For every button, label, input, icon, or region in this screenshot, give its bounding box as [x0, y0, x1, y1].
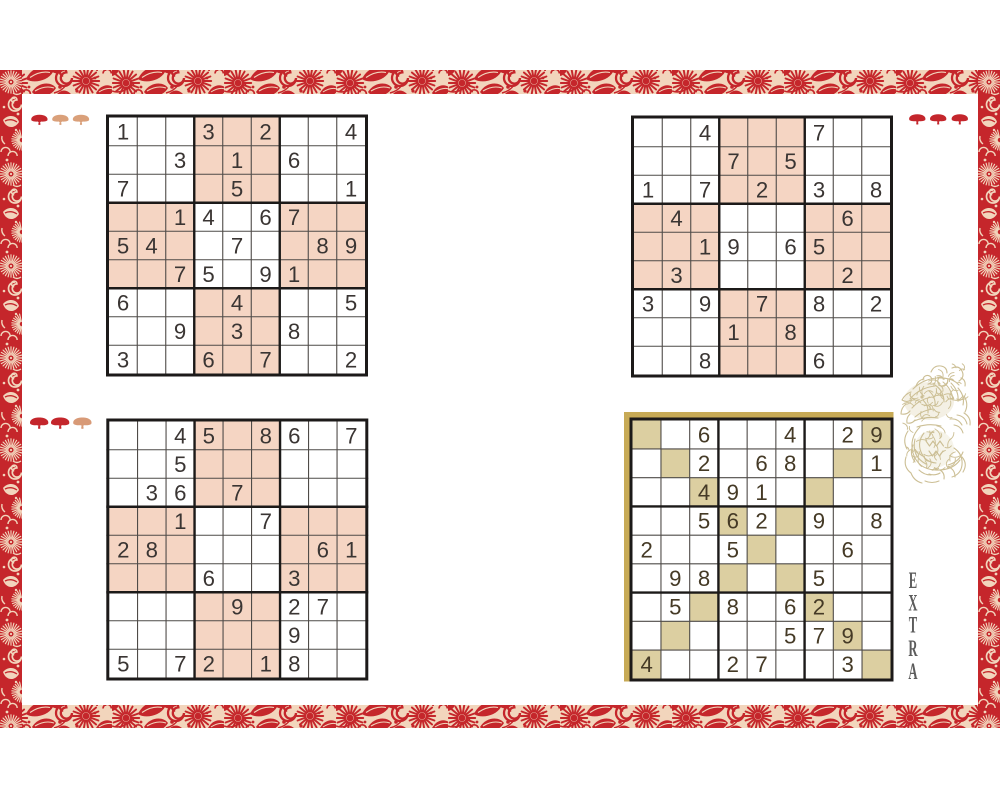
svg-text:2: 2	[841, 263, 853, 288]
svg-text:7: 7	[756, 291, 768, 316]
svg-text:6: 6	[174, 480, 186, 505]
svg-text:9: 9	[669, 566, 681, 591]
svg-text:9: 9	[174, 319, 186, 344]
svg-text:9: 9	[259, 262, 271, 287]
svg-text:6: 6	[202, 347, 214, 372]
svg-text:5: 5	[813, 234, 825, 259]
svg-text:8: 8	[316, 233, 328, 258]
svg-text:5: 5	[698, 509, 710, 534]
svg-text:3: 3	[174, 148, 186, 173]
svg-text:5: 5	[813, 566, 825, 591]
svg-text:4: 4	[345, 119, 357, 144]
svg-text:6: 6	[841, 537, 853, 562]
svg-text:9: 9	[231, 594, 243, 619]
svg-text:6: 6	[784, 234, 796, 259]
svg-text:7: 7	[174, 262, 186, 287]
svg-text:9: 9	[288, 623, 300, 648]
svg-text:2: 2	[203, 651, 215, 676]
svg-text:2: 2	[640, 537, 652, 562]
svg-text:4: 4	[145, 233, 157, 258]
svg-text:4: 4	[699, 120, 711, 145]
svg-text:4: 4	[174, 423, 186, 448]
svg-text:6: 6	[203, 566, 215, 591]
svg-text:6: 6	[117, 290, 129, 315]
svg-text:1: 1	[727, 320, 739, 345]
svg-text:5: 5	[117, 233, 129, 258]
svg-text:5: 5	[231, 176, 243, 201]
svg-text:1: 1	[260, 651, 272, 676]
svg-text:A: A	[908, 659, 918, 685]
svg-text:1: 1	[699, 234, 711, 259]
svg-text:5: 5	[784, 149, 796, 174]
svg-text:7: 7	[260, 509, 272, 534]
svg-text:1: 1	[870, 451, 882, 476]
svg-text:T: T	[909, 613, 918, 639]
svg-text:2: 2	[813, 595, 825, 620]
svg-text:8: 8	[699, 348, 711, 373]
svg-text:8: 8	[260, 423, 272, 448]
svg-text:2: 2	[117, 537, 129, 562]
svg-text:3: 3	[670, 263, 682, 288]
svg-text:4: 4	[670, 206, 682, 231]
svg-text:5: 5	[202, 262, 214, 287]
svg-text:5: 5	[669, 595, 681, 620]
svg-text:8: 8	[727, 595, 739, 620]
svg-text:1: 1	[642, 177, 654, 202]
svg-text:8: 8	[698, 566, 710, 591]
svg-text:7: 7	[174, 651, 186, 676]
svg-text:7: 7	[231, 480, 243, 505]
svg-text:4: 4	[640, 652, 652, 677]
svg-text:7: 7	[288, 205, 300, 230]
svg-text:8: 8	[870, 177, 882, 202]
svg-text:6: 6	[755, 451, 767, 476]
svg-text:3: 3	[288, 566, 300, 591]
svg-text:7: 7	[755, 652, 767, 677]
svg-text:6: 6	[317, 537, 329, 562]
svg-text:4: 4	[202, 205, 214, 230]
svg-text:6: 6	[841, 206, 853, 231]
svg-text:2: 2	[841, 422, 853, 447]
svg-text:5: 5	[203, 423, 215, 448]
svg-text:6: 6	[813, 348, 825, 373]
svg-text:5: 5	[174, 452, 186, 477]
svg-text:3: 3	[202, 119, 214, 144]
svg-text:2: 2	[727, 652, 739, 677]
svg-text:9: 9	[727, 480, 739, 505]
svg-text:6: 6	[288, 423, 300, 448]
svg-text:3: 3	[841, 652, 853, 677]
svg-text:7: 7	[813, 623, 825, 648]
svg-text:8: 8	[288, 319, 300, 344]
svg-text:2: 2	[756, 177, 768, 202]
svg-text:1: 1	[117, 119, 129, 144]
svg-text:2: 2	[755, 509, 767, 534]
svg-text:7: 7	[727, 149, 739, 174]
svg-text:2: 2	[345, 347, 357, 372]
svg-text:4: 4	[231, 290, 243, 315]
svg-text:2: 2	[698, 451, 710, 476]
svg-text:4: 4	[698, 480, 710, 505]
svg-text:6: 6	[784, 595, 796, 620]
svg-text:7: 7	[813, 120, 825, 145]
svg-text:1: 1	[174, 509, 186, 534]
svg-text:6: 6	[259, 205, 271, 230]
svg-text:7: 7	[117, 176, 129, 201]
svg-text:9: 9	[841, 623, 853, 648]
svg-text:3: 3	[146, 480, 158, 505]
svg-text:3: 3	[813, 177, 825, 202]
svg-text:7: 7	[345, 423, 357, 448]
svg-text:2: 2	[870, 291, 882, 316]
svg-text:1: 1	[288, 262, 300, 287]
svg-text:8: 8	[288, 651, 300, 676]
svg-text:1: 1	[755, 480, 767, 505]
svg-text:7: 7	[699, 177, 711, 202]
svg-text:6: 6	[698, 422, 710, 447]
svg-text:2: 2	[288, 594, 300, 619]
svg-text:9: 9	[345, 233, 357, 258]
svg-text:8: 8	[813, 291, 825, 316]
svg-text:2: 2	[259, 119, 271, 144]
svg-text:1: 1	[231, 148, 243, 173]
svg-text:5: 5	[784, 623, 796, 648]
svg-text:9: 9	[699, 291, 711, 316]
svg-text:1: 1	[345, 537, 357, 562]
svg-text:7: 7	[317, 594, 329, 619]
svg-text:3: 3	[642, 291, 654, 316]
svg-text:1: 1	[345, 176, 357, 201]
svg-text:5: 5	[117, 651, 129, 676]
svg-text:8: 8	[784, 451, 796, 476]
svg-text:8: 8	[146, 537, 158, 562]
svg-text:3: 3	[231, 319, 243, 344]
svg-text:6: 6	[727, 509, 739, 534]
svg-text:9: 9	[813, 509, 825, 534]
svg-text:7: 7	[259, 347, 271, 372]
svg-text:4: 4	[784, 422, 796, 447]
svg-text:9: 9	[870, 422, 882, 447]
svg-text:1: 1	[174, 205, 186, 230]
svg-text:8: 8	[784, 320, 796, 345]
svg-text:9: 9	[727, 234, 739, 259]
svg-text:5: 5	[345, 290, 357, 315]
svg-text:5: 5	[727, 537, 739, 562]
svg-text:7: 7	[231, 233, 243, 258]
svg-text:6: 6	[288, 148, 300, 173]
svg-text:3: 3	[117, 347, 129, 372]
svg-text:8: 8	[870, 509, 882, 534]
